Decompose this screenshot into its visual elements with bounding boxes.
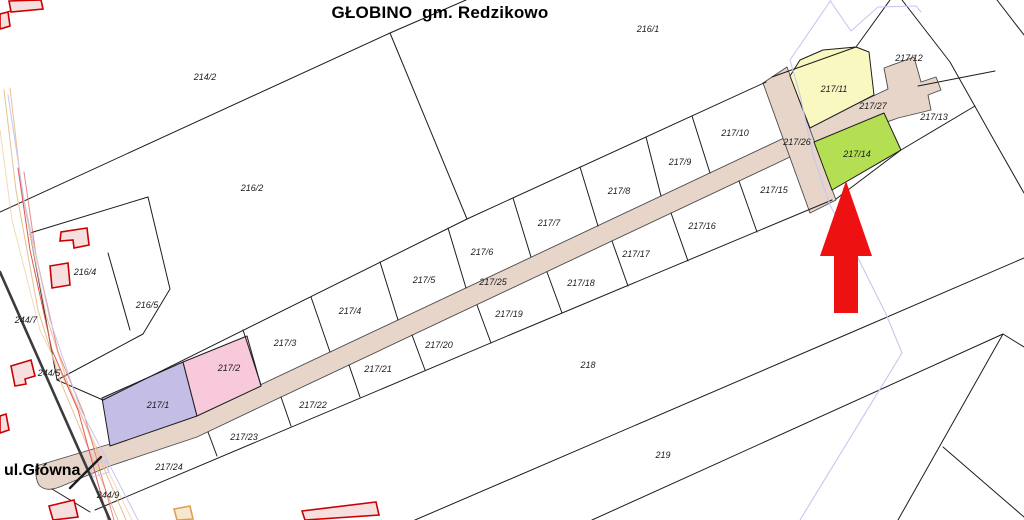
parcel-label-217-1: 217/1 [146,400,170,410]
parcel-label-217-5: 217/5 [412,275,437,285]
building-244-5 [11,360,35,386]
parcel-label-217-20: 217/20 [424,340,453,350]
parcel-label-217-17: 217/17 [621,249,651,259]
buildings [0,0,379,520]
building-216-4-b [50,263,70,288]
cadastral-map: 214/2216/1216/2216/4216/5244/7244/5244/9… [0,0,1024,520]
parcel-label-217-23: 217/23 [229,432,258,442]
parcel-label-217-15: 217/15 [759,185,789,195]
parcel-label-217-2: 217/2 [217,363,241,373]
parcel-label-217-21: 217/21 [363,364,392,374]
parcel-label-217-12: 217/12 [894,53,923,63]
parcel-label-244-5: 244/5 [37,368,62,378]
parcel-label-217-9: 217/9 [668,157,692,167]
parcel-label-219: 219 [654,450,670,460]
parcel-label-217-19: 217/19 [494,309,523,319]
parcel-label-217-7: 217/7 [537,218,562,228]
parcel-label-217-8: 217/8 [607,186,631,196]
cadastral-map-canvas: 214/2216/1216/2216/4216/5244/7244/5244/9… [0,0,1024,520]
parcel-label-217-26: 217/26 [782,137,811,147]
building-left-edge [0,414,9,433]
parcel-label-216-1: 216/1 [636,24,660,34]
parcel-label-244-7: 244/7 [14,315,39,325]
map-title: GŁOBINO gm. Redzikowo [240,3,640,23]
parcel-label-214-2: 214/2 [193,72,217,82]
parcel-label-217-4: 217/4 [338,306,362,316]
parcel-label-217-22: 217/22 [298,400,327,410]
street-name-label: ul.Główna [4,462,80,480]
building-topleft-2 [0,12,10,29]
parcel-label-217-6: 217/6 [470,247,494,257]
parcel-label-216-4: 216/4 [73,267,97,277]
parcel-label-217-14: 217/14 [842,149,871,159]
parcel-label-216-2: 216/2 [240,183,264,193]
building-topleft-1 [9,0,43,12]
building-bottom-center [302,502,379,520]
shed-bottom-center [174,506,193,520]
parcel-label-218: 218 [579,360,595,370]
parcel-label-217-24: 217/24 [154,462,183,472]
parcel-label-217-25: 217/25 [478,277,508,287]
building-216-4-a [60,228,89,248]
parcel-label-217-27: 217/27 [858,101,888,111]
parcel-label-217-3: 217/3 [273,338,297,348]
building-244-9 [49,500,78,520]
parcel-label-217-16: 217/16 [687,221,716,231]
parcel-label-217-11: 217/11 [820,84,848,94]
parcel-label-216-5: 216/5 [135,300,160,310]
parcel-label-244-9: 244/9 [96,490,120,500]
parcel-label-217-13: 217/13 [919,112,948,122]
parcel-label-217-18: 217/18 [566,278,595,288]
parcel-label-217-10: 217/10 [720,128,749,138]
